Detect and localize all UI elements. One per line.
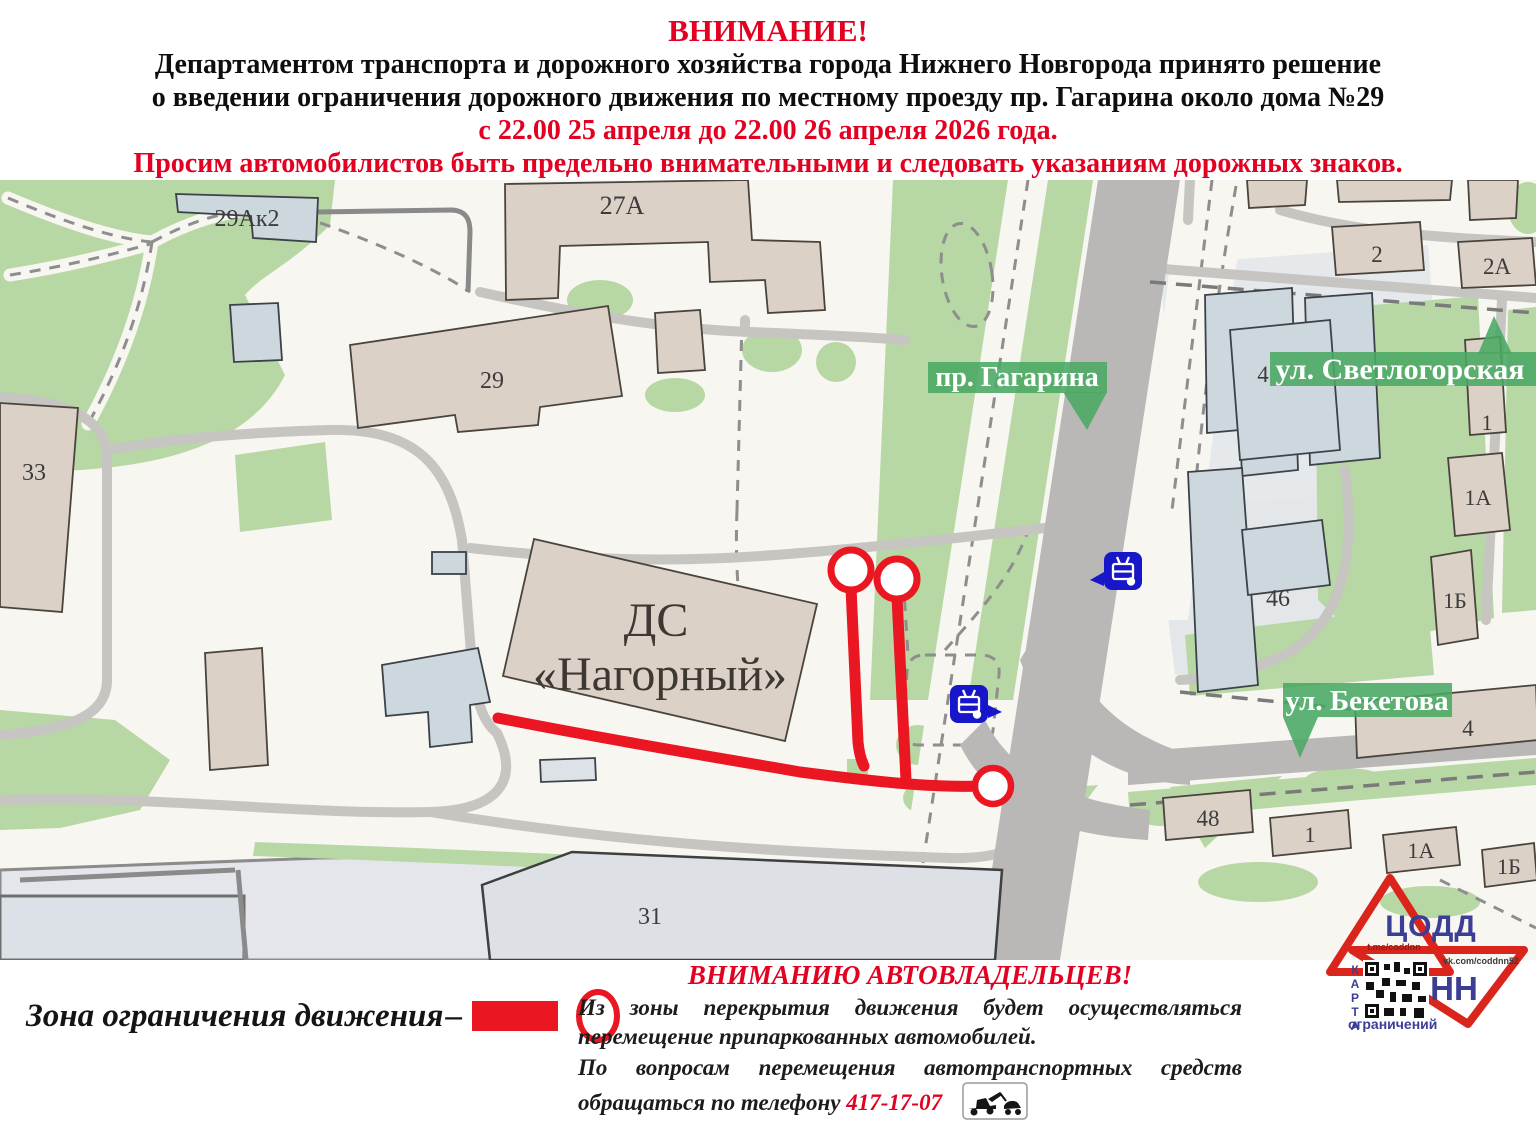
tow-truck-icon	[962, 1082, 1028, 1120]
building-label-2a: 2А	[1483, 254, 1512, 279]
building-label-31: 31	[638, 904, 662, 930]
logo-restrictions: ограничений	[1348, 1016, 1434, 1032]
building-label-1-bot: 1	[1305, 822, 1316, 847]
logo-org-name: ЦОДД	[1376, 910, 1486, 944]
restriction-endpoint-circle	[877, 559, 917, 599]
building-label-33: 33	[22, 460, 46, 486]
codd-logo: ЦОДД НН t.me/coddnn vk.com/coddnn52 КАРТ…	[1318, 866, 1536, 1061]
restriction-endpoint-circle	[831, 550, 871, 590]
header-line-1: Департаментом транспорта и дорожного хоз…	[0, 48, 1536, 81]
building-label-29ak2: 29Ак2	[215, 206, 280, 232]
building-label-4-svet: 4	[1257, 362, 1269, 387]
announcement-header: ВНИМАНИЕ! Департаментом транспорта и дор…	[0, 0, 1536, 180]
building-label-1-svet: 1	[1482, 410, 1493, 435]
attention-title: ВНИМАНИЕ!	[0, 14, 1536, 48]
restriction-endpoint-circle	[975, 768, 1011, 804]
header-line-2: о введении ограничения дорожного движени…	[0, 81, 1536, 114]
building-label-1b-mid: 1Б	[1443, 588, 1467, 613]
svg-text:ул. Бекетова: ул. Бекетова	[1285, 685, 1449, 717]
building-label-4-bek: 4	[1462, 716, 1474, 741]
building-label-1a-mid: 1А	[1465, 485, 1492, 510]
header-dates: с 22.00 25 апреля до 22.00 26 апреля 202…	[0, 114, 1536, 147]
building-label-46: 46	[1266, 586, 1290, 612]
notice-title: ВНИМАНИЮ АВТОВЛАДЕЛЬЦЕВ!	[578, 960, 1242, 991]
svg-text:ул. Светлогорская: ул. Светлогорская	[1275, 353, 1524, 386]
phone-number: 417-17-07	[846, 1090, 942, 1115]
legend-dash: –	[445, 998, 462, 1035]
ds-nagorny-line1: ДС	[624, 594, 689, 647]
logo-vk: vk.com/coddnn52	[1430, 956, 1532, 966]
qr-code-icon	[1363, 960, 1429, 1020]
logo-telegram: t.me/coddnn	[1346, 942, 1442, 952]
building-label-27a: 27А	[600, 191, 645, 220]
building-label-2: 2	[1371, 242, 1383, 267]
header-warning: Просим автомобилистов быть предельно вни…	[0, 147, 1536, 180]
ds-nagorny-line2: «Нагорный»	[533, 648, 787, 701]
owners-notice: ВНИМАНИЮ АВТОВЛАДЕЛЬЦЕВ! Из зоны перекры…	[578, 960, 1242, 1121]
building-label-1a-bot: 1А	[1408, 838, 1435, 863]
logo-city: НН	[1424, 970, 1484, 1008]
svg-text:пр. Гагарина: пр. Гагарина	[935, 362, 1099, 393]
building-label-29: 29	[480, 368, 504, 394]
notice-paragraph-1: Из зоны перекрытия движения будет осущес…	[578, 993, 1242, 1052]
city-map: 29Ак2 27А 29 33 2 2А 4 1 1А 1Б 46 4 48 1…	[0, 180, 1536, 960]
building-label-48: 48	[1197, 806, 1220, 831]
legend: Зона ограничения движения –	[26, 988, 622, 1044]
logo-karta-vertical: КАРТА	[1349, 963, 1361, 1021]
notice-paragraph-2: По вопросам перемещения автотранспортных…	[578, 1053, 1242, 1120]
legend-label: Зона ограничения движения	[26, 998, 443, 1035]
legend-red-line-swatch	[472, 1001, 558, 1031]
